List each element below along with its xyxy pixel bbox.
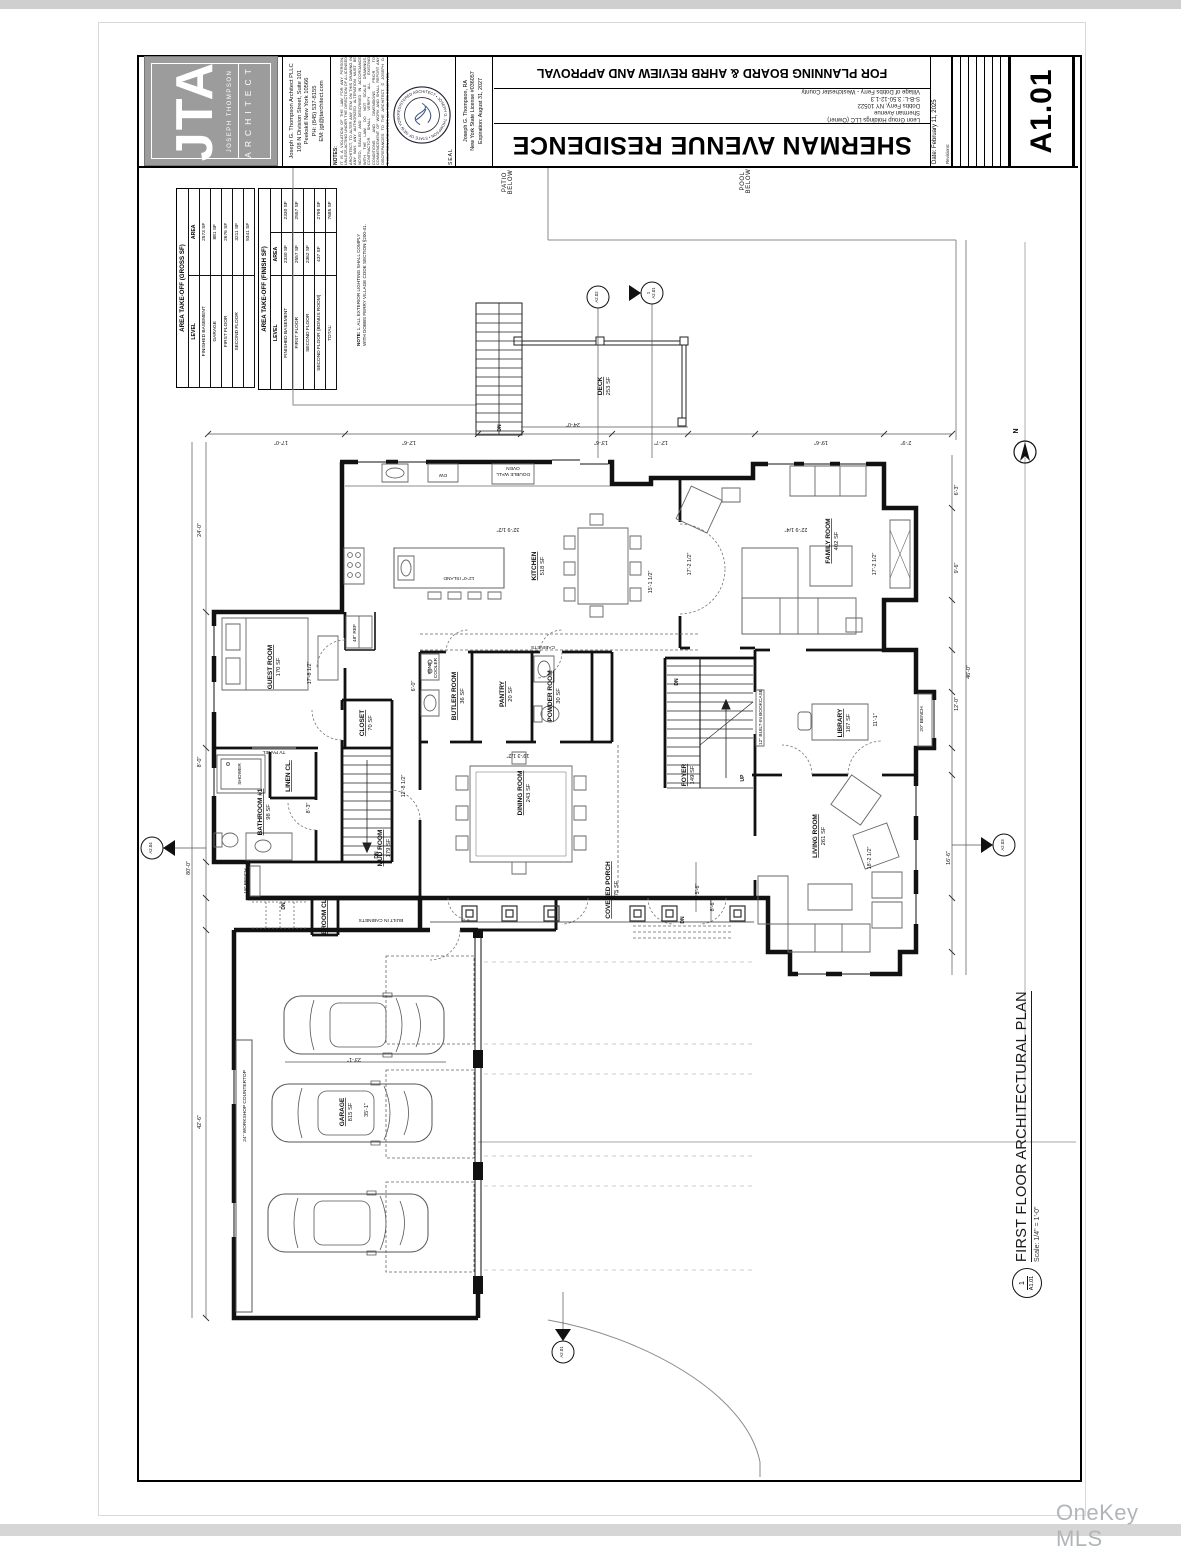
plan-label: FAMILY ROOM402 SF [825, 518, 840, 563]
plan-label: COVERED PORCH175 SF [605, 861, 620, 919]
plan-label: A2.01 [559, 1346, 564, 1358]
plan-label: 18" BENCH [243, 868, 249, 894]
floor-plan-drawing: KITCHEN518 SFFAMILY ROOM402 SFGUEST ROOM… [0, 0, 1181, 1536]
plan-title-block: 1 A1.01 FIRST FLOOR ARCHITECTURAL PLAN S… [1004, 998, 1050, 1298]
plan-label: 20" BENCH [919, 706, 925, 732]
plan-label: CLOSET70 SF [359, 710, 374, 736]
plan-label: 8'-6" [710, 901, 716, 912]
plan-number: 1 [1019, 1276, 1028, 1290]
plan-label: POWDER ROOM30 SF [547, 670, 562, 721]
plan-title-text: FIRST FLOOR ARCHITECTURAL PLAN [1014, 991, 1032, 1262]
plan-label: 48" REF [352, 624, 358, 642]
plan-label: 12'-0" [954, 697, 960, 711]
garage [236, 930, 483, 1312]
plan-label: A2.02 [594, 291, 599, 303]
plan-label: 5'-6" [695, 884, 701, 895]
plan-label: 17'-2 1/2" [687, 553, 693, 576]
plan-label: DOUBLE WALLOVEN [496, 465, 530, 477]
plan-label: KITCHEN518 SF [531, 551, 546, 580]
plan-label: CABINETS [531, 644, 555, 650]
plan-label: 24'-0" [566, 421, 580, 427]
plan-label: GUEST ROOM170 SF [267, 645, 282, 689]
plan-label: LINEN CL. [285, 760, 292, 792]
plan-label: 80'-0" [186, 861, 192, 875]
plan-label: 16'-6" [946, 851, 952, 865]
plan-label: 24'-0" [197, 523, 203, 537]
plan-label: 8'-0" [197, 757, 203, 768]
plan-label: 11'-1" [873, 713, 879, 726]
interior-walls [214, 478, 916, 935]
plan-sheet-ref: A1.01 [1028, 1276, 1036, 1290]
plan-label: 18'-2 1/2" [867, 847, 873, 870]
plan-label: DINING ROOM243 SF [517, 771, 532, 816]
porch [430, 906, 754, 922]
plan-label: BUILT IN CABINETS [359, 917, 404, 923]
onekey-mls-watermark: OneKey MLS [1056, 1500, 1181, 1552]
cabinetry-dashed [252, 634, 756, 1272]
plan-label: 22'-9 1/4" [785, 526, 808, 532]
car [268, 1191, 428, 1255]
plan-label: A2.03 [1000, 839, 1005, 851]
plan-label: 42'-6" [197, 1115, 203, 1129]
plan-label: 35'-1" [364, 1103, 370, 1117]
exterior-walls [214, 462, 934, 1318]
plan-label: 15'-1 1/2" [648, 571, 654, 594]
plan-label: 12'-6" [402, 439, 416, 445]
plan-label: 8'-3" [306, 803, 312, 814]
plan-label: UP [740, 774, 746, 782]
plan-label: 13'-6" [594, 439, 608, 445]
plan-label: DN [680, 916, 686, 924]
plan-number-bubble: 1 A1.01 [1012, 1268, 1042, 1298]
plan-label: N [1013, 428, 1020, 433]
plan-label: 9'-6" [954, 563, 960, 574]
plan-label: DN [281, 902, 287, 910]
plan-scale-text: Scale: 1/4" = 1'-0" [1034, 991, 1041, 1262]
plan-label: 17'-2 1/2" [872, 553, 878, 576]
plan-label: LIBRARY187 SF [837, 708, 852, 737]
plan-label: 23'-1" [347, 1056, 361, 1062]
plan-label: 12'-8 1/2" [401, 775, 407, 798]
plan-label: 24" WORKSHOP COUNTERTOP [242, 1070, 248, 1142]
plan-label: 12'-7" [654, 439, 668, 445]
site-lines [293, 168, 1076, 1477]
plan-label: A2.04 [148, 842, 153, 854]
plan-label: 12" BUILT-IN BOOKCASE [758, 689, 764, 745]
plan-label: 6'-3" [954, 485, 960, 496]
plan-label: BROOM CL. [321, 897, 328, 934]
plan-label: PATIOBELOW [502, 170, 514, 195]
plan-label: 19'-6" [814, 439, 828, 445]
plan-label: DN [674, 678, 680, 686]
plan-label: PANTRY20 SF [499, 680, 514, 707]
plan-label: 2'-9" [901, 439, 912, 445]
plan-label: BUTLER ROOM36 SF [451, 672, 466, 720]
plan-label: GARAGE815 SF [339, 1097, 354, 1126]
plan-label: SHOWER [237, 763, 243, 785]
dimension-lines [192, 240, 966, 1321]
car [284, 993, 444, 1057]
deck [476, 303, 688, 435]
plan-label: 6'-0" [411, 681, 417, 692]
plan-labels: KITCHEN518 SFFAMILY ROOM402 SFGUEST ROOM… [148, 169, 1020, 1358]
plan-label: LIVING ROOM261 SF [812, 814, 827, 858]
plan-label: 1A2.01 [646, 287, 656, 299]
plan-label: 19'-3 1/2" [507, 752, 530, 758]
plan-label: DN [374, 851, 380, 859]
plan-label: 32'-9 1/2" [497, 526, 520, 532]
plan-label: DN [497, 424, 503, 432]
plan-label: POOLBELOW [740, 169, 752, 194]
plan-label: 12'-0" ISLAND [443, 575, 474, 581]
plan-label: DW [439, 472, 447, 478]
plan-label: 46'-0" [966, 665, 972, 679]
plan-label: 17'-8 1/2" [307, 662, 313, 685]
plan-label: DECK253 SF [597, 376, 612, 395]
plan-label: TV PANEL [262, 749, 285, 755]
plan-label: 17'-0" [274, 439, 288, 445]
